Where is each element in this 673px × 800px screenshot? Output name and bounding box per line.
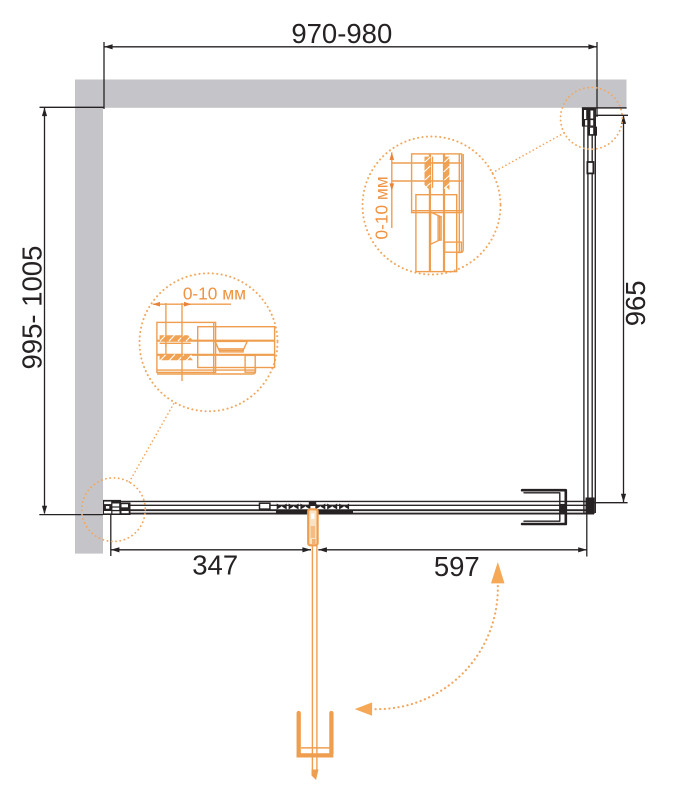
svg-text:347: 347 xyxy=(192,549,238,580)
svg-text:965: 965 xyxy=(620,280,651,326)
svg-text:995- 1005: 995- 1005 xyxy=(17,246,48,370)
svg-text:0-10 мм: 0-10 мм xyxy=(372,176,392,239)
svg-text:970-980: 970-980 xyxy=(291,18,392,49)
svg-text:597: 597 xyxy=(434,551,480,582)
svg-text:0-10 мм: 0-10 мм xyxy=(183,284,246,304)
